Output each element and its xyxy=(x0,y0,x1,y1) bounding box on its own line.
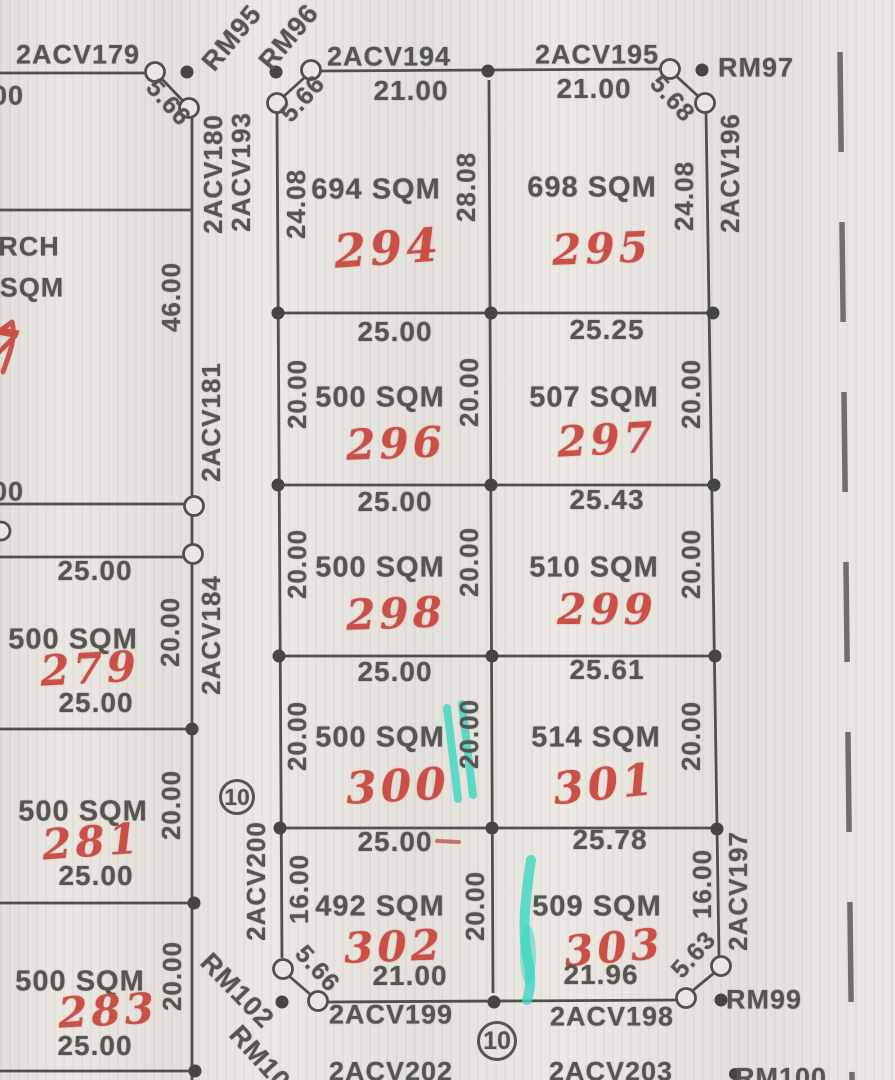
dim-25-78: 25.78 xyxy=(572,826,647,854)
area-lot295: 698 SQM xyxy=(527,174,657,203)
dim-5-66-sw: 5.66 xyxy=(290,941,344,997)
marker-rm100: RM100 xyxy=(735,1065,827,1080)
area-lot300: 500 SQM xyxy=(315,724,445,753)
dim-25-lot302-top: 25.00 xyxy=(357,828,432,856)
area-lot294: 694 SQM xyxy=(311,176,441,205)
dim-partial-mid-left: 00 xyxy=(0,479,24,506)
dim-21-lot295: 21.00 xyxy=(556,75,631,103)
marker-2acv181: 2ACV181 xyxy=(198,362,224,482)
dim-20-lot300-e: 20.00 xyxy=(456,699,482,769)
dim-25-lot296-top: 25.00 xyxy=(357,318,432,346)
block-number-10-left: 10 xyxy=(219,779,255,815)
dim-20-lot296-e: 20.00 xyxy=(456,357,482,427)
lot-partial-left-edge: 7 xyxy=(0,318,25,378)
lot-296: 296 xyxy=(345,421,446,466)
dim-25-43: 25.43 xyxy=(569,486,644,514)
dim-5-63: 5.63 xyxy=(667,927,721,983)
lot-294: 294 xyxy=(333,221,444,274)
area-lot297: 507 SQM xyxy=(529,384,659,413)
marker-2acv196: 2ACV196 xyxy=(717,113,743,233)
marker-rm96: RM96 xyxy=(254,0,324,75)
plat-map: 2ACV17900RM95RM965.665.662ACV1942ACV195R… xyxy=(0,0,895,1080)
dim-20-lot298-w: 20.00 xyxy=(284,529,310,599)
marker-rm97: RM97 xyxy=(718,55,794,82)
text-partial-rch: RCH xyxy=(0,234,60,261)
dim-24-08-e: 24.08 xyxy=(671,161,697,231)
dim-24-08-w: 24.08 xyxy=(283,169,309,239)
lot-300: 300 xyxy=(345,762,451,811)
dim-20-lot302-e: 20.00 xyxy=(462,871,488,941)
marker-rm101: RM101 xyxy=(224,1021,306,1080)
dim-25-25: 25.25 xyxy=(569,316,644,344)
area-lot296: 500 SQM xyxy=(315,384,445,413)
dim-20-lot298-e: 20.00 xyxy=(456,527,482,597)
label-layer: 2ACV17900RM95RM965.665.662ACV1942ACV195R… xyxy=(0,0,895,1080)
lot-279: 279 xyxy=(39,645,141,692)
marker-2acv199: 2ACV199 xyxy=(329,1002,453,1029)
dim-20-lot299-e: 20.00 xyxy=(678,529,704,599)
marker-2acv195: 2ACV195 xyxy=(535,42,659,69)
dim-21-lot294: 21.00 xyxy=(373,77,448,105)
area-lot303: 509 SQM xyxy=(532,893,662,922)
dim-20-lot283: 20.00 xyxy=(159,941,185,1011)
dim-28-08: 28.08 xyxy=(453,152,479,222)
lot-299: 299 xyxy=(557,589,657,631)
text-partial-sqm: SQM xyxy=(0,275,64,302)
marker-rm102: RM102 xyxy=(195,949,278,1034)
dim-25-lot298-top: 25.00 xyxy=(357,488,432,516)
dim-16-lot303-e: 16.00 xyxy=(689,849,715,919)
lot-301: 301 xyxy=(551,758,659,813)
dim-25-lot281-bottom: 25.00 xyxy=(58,862,133,890)
dim-21-96: 21.96 xyxy=(563,961,638,989)
lot-298: 298 xyxy=(345,591,446,636)
dim-partial-top-left: 00 xyxy=(0,83,24,110)
dim-16-lot302-w: 16.00 xyxy=(286,854,312,924)
marker-2acv179: 2ACV179 xyxy=(16,42,140,69)
marker-2acv193: 2ACV193 xyxy=(228,112,254,232)
dim-21-lot302-bottom: 21.00 xyxy=(372,962,447,990)
dim-20-lot301-e: 20.00 xyxy=(678,701,704,771)
area-lot302: 492 SQM xyxy=(315,893,445,922)
dim-5-66-top: 5.66 xyxy=(276,71,330,127)
dim-25-lot283-bottom: 25.00 xyxy=(57,1032,132,1060)
area-lot301: 514 SQM xyxy=(531,724,661,753)
dim-46-00: 46.00 xyxy=(158,262,184,332)
marker-2acv203: 2ACV203 xyxy=(549,1059,673,1080)
dim-20-lot297-e: 20.00 xyxy=(678,359,704,429)
dim-25-lot279-top: 25.00 xyxy=(57,557,132,585)
dim-25-lot279-bottom: 25.00 xyxy=(58,689,133,717)
lot-295: 295 xyxy=(551,226,652,271)
dim-5-66-nw: 5.66 xyxy=(141,75,195,131)
area-lot299: 510 SQM xyxy=(529,554,659,583)
marker-rm95: RM95 xyxy=(197,0,267,76)
dim-25-61: 25.61 xyxy=(569,656,644,684)
marker-2acv194: 2ACV194 xyxy=(327,44,451,71)
marker-rm99: RM99 xyxy=(726,987,802,1014)
lot-283: 283 xyxy=(57,987,159,1034)
lot-297: 297 xyxy=(556,416,658,463)
marker-2acv184: 2ACV184 xyxy=(198,575,224,695)
marker-2acv202: 2ACV202 xyxy=(329,1059,453,1080)
dim-25-lot300-top: 25.00 xyxy=(357,658,432,686)
marker-2acv197: 2ACV197 xyxy=(725,831,751,951)
marker-2acv200: 2ACV200 xyxy=(243,821,269,941)
block-number-10-bottom: 10 xyxy=(477,1021,517,1061)
marker-2acv198: 2ACV198 xyxy=(550,1004,674,1031)
dim-20-lot296-w: 20.00 xyxy=(284,359,310,429)
area-lot298: 500 SQM xyxy=(315,554,445,583)
dim-20-lot300-w: 20.00 xyxy=(284,701,310,771)
marker-2acv180: 2ACV180 xyxy=(200,114,226,234)
dim-20-lot279: 20.00 xyxy=(157,597,183,667)
dim-5-68: 5.68 xyxy=(645,71,699,127)
dim-20-lot281: 20.00 xyxy=(158,770,184,840)
